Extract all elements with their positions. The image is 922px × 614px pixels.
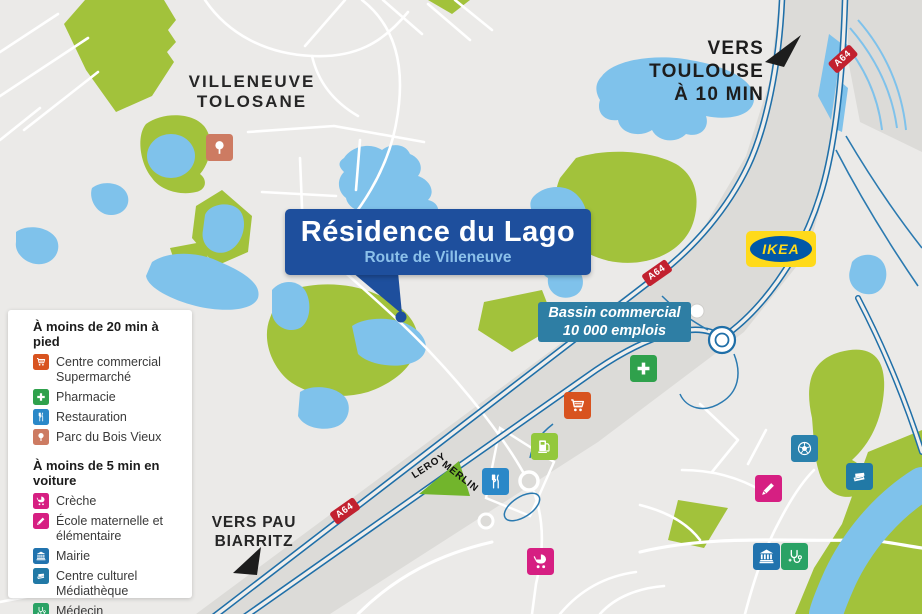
map-canvas: VILLENEUVE TOLOSANE VERS TOULOUSE À 10 M… [0, 0, 922, 614]
legend-item: Centre commercial Supermarché [33, 354, 182, 385]
residence-title: Résidence du Lago [301, 217, 575, 248]
tree-icon [206, 134, 233, 161]
cart-icon [33, 354, 49, 370]
direction-pau-label: VERS PAU BIARRITZ [205, 513, 303, 551]
stroller-icon [527, 548, 554, 575]
ball-icon [791, 435, 818, 462]
location-dot [396, 312, 407, 323]
legend-section-header: À moins de 5 min en voiture [33, 458, 182, 488]
legend-item: Médecin [33, 603, 182, 614]
bank-icon [753, 543, 780, 570]
city-label: VILLENEUVE TOLOSANE [178, 72, 326, 112]
legend-item: Mairie [33, 548, 182, 564]
restaurant-icon [33, 409, 49, 425]
legend-item: Parc du Bois Vieux [33, 429, 182, 445]
bassin-line1: Bassin commercial [548, 304, 680, 322]
books-icon [33, 568, 49, 584]
legend-item-label: Parc du Bois Vieux [56, 429, 161, 445]
legend-item: Centre culturel Médiathèque [33, 568, 182, 599]
legend-item: Crèche [33, 493, 182, 509]
legend-item-label: Mairie [56, 548, 90, 564]
cart-icon [564, 392, 591, 419]
tree-icon [33, 429, 49, 445]
pencil-icon [755, 475, 782, 502]
legend-item-label: Crèche [56, 493, 96, 509]
legend-section-header: À moins de 20 min à pied [33, 319, 182, 349]
stroller-icon [33, 493, 49, 509]
legend-item: Restauration [33, 409, 182, 425]
legend-item-label: École maternelle et élémentaire [56, 513, 163, 544]
legend-item-label: Centre commercial Supermarché [56, 354, 161, 385]
legend-item-label: Médecin [56, 603, 103, 614]
residence-subtitle: Route de Villeneuve [364, 248, 511, 267]
legend-item-label: Restauration [56, 409, 127, 425]
legend-item: École maternelle et élémentaire [33, 513, 182, 544]
ikea-logo: IKEA [746, 231, 816, 267]
legend-item-label: Pharmacie [56, 389, 116, 405]
ikea-wordmark: IKEA [762, 241, 799, 257]
legend-item-label: Centre culturel Médiathèque [56, 568, 137, 599]
bassin-line2: 10 000 emplois [563, 322, 666, 340]
legend-panel: À moins de 20 min à piedCentre commercia… [8, 310, 192, 598]
ikea-oval: IKEA [750, 236, 812, 262]
bassin-commercial-box: Bassin commercial 10 000 emplois [538, 302, 691, 342]
cross-icon [630, 355, 657, 382]
fuel-icon [531, 433, 558, 460]
direction-toulouse-label: VERS TOULOUSE À 10 MIN [592, 37, 764, 106]
books-icon [846, 463, 873, 490]
residence-callout: Résidence du Lago Route de Villeneuve [285, 209, 591, 275]
stethoscope-icon [781, 543, 808, 570]
bank-icon [33, 548, 49, 564]
legend-item: Pharmacie [33, 389, 182, 405]
stethoscope-icon [33, 603, 49, 614]
restaurant-icon [482, 468, 509, 495]
cross-icon [33, 389, 49, 405]
pencil-icon [33, 513, 49, 529]
